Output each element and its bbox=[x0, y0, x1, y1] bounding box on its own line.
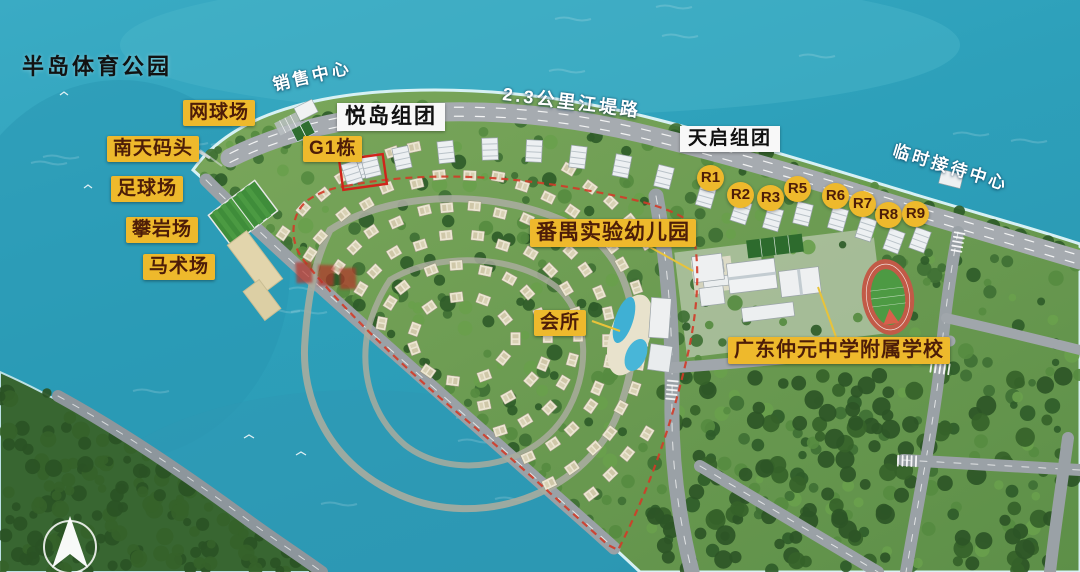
football-field-label: 足球场 bbox=[111, 176, 183, 202]
nantian-dock-label: 南天码头 bbox=[107, 136, 199, 162]
tianqi-cluster-label: 天启组团 bbox=[680, 126, 780, 152]
sales-center-label: 销售中心 bbox=[271, 58, 353, 95]
tower-r7-label: R7 bbox=[849, 191, 876, 217]
masterplan-aerial-map: 半岛体育公园悦岛组团天启组团销售中心2.3公里江堤路临时接待中心网球场南天码头足… bbox=[0, 0, 1080, 572]
peninsula-sports-park-label: 半岛体育公园 bbox=[22, 54, 172, 79]
tower-r3-label: R3 bbox=[757, 185, 784, 211]
tower-r2-label: R2 bbox=[727, 182, 754, 208]
equestrian-field-label: 马术场 bbox=[143, 254, 215, 280]
tennis-court-label: 网球场 bbox=[183, 100, 255, 126]
tower-r5-label: R5 bbox=[784, 176, 811, 202]
riverside-road-label: 2.3公里江堤路 bbox=[501, 84, 642, 121]
zhongyuan-affiliated-school-label: 广东仲元中学附属学校 bbox=[728, 337, 950, 364]
temporary-reception-center-label: 临时接待中心 bbox=[890, 141, 1010, 195]
tower-r1-label: R1 bbox=[697, 165, 724, 191]
rock-climbing-field-label: 攀岩场 bbox=[126, 217, 198, 243]
tower-r9-label: R9 bbox=[902, 201, 929, 227]
tower-r8-label: R8 bbox=[875, 202, 902, 228]
yuedao-cluster-label: 悦岛组团 bbox=[337, 103, 445, 131]
clubhouse-label: 会所 bbox=[534, 310, 586, 336]
panyu-experimental-kindergarten-label: 番禺实验幼儿园 bbox=[530, 219, 696, 247]
tower-r6-label: R6 bbox=[822, 183, 849, 209]
building-g1-label: G1栋 bbox=[303, 136, 362, 162]
map-labels-layer: 半岛体育公园悦岛组团天启组团销售中心2.3公里江堤路临时接待中心网球场南天码头足… bbox=[0, 0, 1080, 572]
